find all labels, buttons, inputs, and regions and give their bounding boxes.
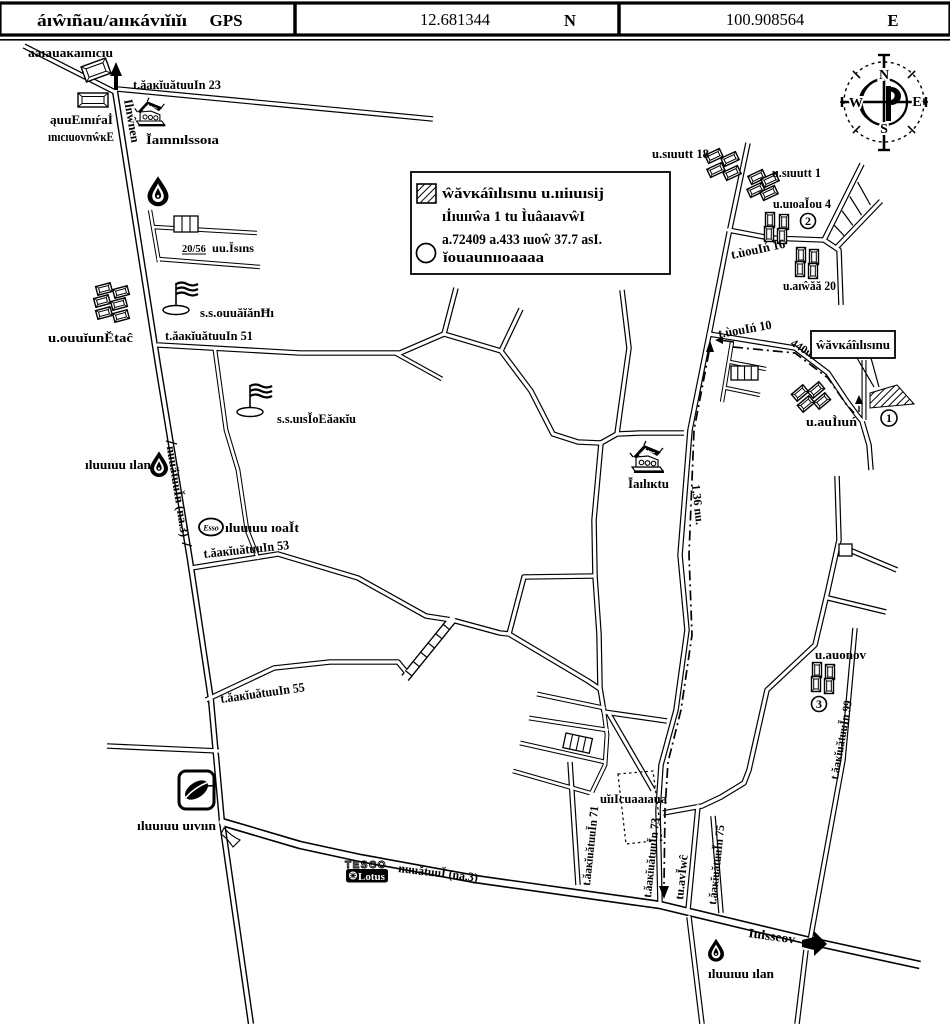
svg-text:uĭıIcuaaıaua: uĭıIcuaaıaua: [600, 792, 668, 806]
svg-text:s.s.ouuăĭănĦı: s.s.ouuăĭănĦı: [200, 305, 274, 320]
svg-text:E: E: [912, 95, 921, 110]
svg-text:Lotus: Lotus: [358, 871, 386, 883]
svg-text:Ĭaınnılssoıa: Ĭaınnılssoıa: [146, 132, 220, 147]
svg-text:S: S: [880, 122, 888, 137]
svg-text:u.sıuutt 18: u.sıuutt 18: [652, 146, 709, 161]
svg-text:ıİıuııŵa 1 tu ÌuâaıavŵI: ıİıuııŵa 1 tu ÌuâaıavŵI: [442, 208, 585, 225]
svg-text:GPS: GPS: [209, 11, 242, 30]
svg-text:N: N: [564, 11, 576, 30]
svg-text:s.s.uısĬoEăaĸĭu: s.s.uısĬoEăaĸĭu: [277, 411, 356, 426]
svg-text:ıluuıuu ılan: ıluuıuu ılan: [85, 457, 152, 472]
svg-text:ŵăvĸáîılısınu: ŵăvĸáîılısınu: [816, 338, 890, 352]
svg-text:u.aıŵăă 20: u.aıŵăă 20: [783, 278, 836, 293]
svg-text:ıluuıuu ıoaĬt: ıluuıuu ıoaĬt: [225, 520, 300, 535]
svg-text:ınıcıuovnŵĸE: ınıcıuovnŵĸE: [48, 130, 114, 144]
svg-text:u.sıuutt 1: u.sıuutt 1: [772, 165, 821, 180]
svg-text:ąuuEınıŕaİ: ąuuEınıŕaİ: [50, 113, 113, 127]
svg-text:Esso: Esso: [202, 524, 219, 533]
svg-text:a.72409 a.433 ıuoŵ 37.7 asI.: a.72409 a.433 ıuoŵ 37.7 asI.: [442, 232, 602, 248]
svg-text:t.ăaĸĭuătuuIn 51: t.ăaĸĭuătuuIn 51: [165, 328, 253, 343]
svg-text:t.ăaĸĭuătuuIn 23: t.ăaĸĭuătuuIn 23: [133, 77, 221, 92]
svg-text:ĭouaunııoaaaa: ĭouaunııoaaaa: [442, 250, 545, 266]
svg-text:20/56: 20/56: [182, 244, 206, 255]
svg-text:ŵăvĸáîılısınu u.ııiıuısij: ŵăvĸáîılısınu u.ııiıuısij: [442, 186, 604, 202]
svg-text:100.908564: 100.908564: [726, 10, 804, 29]
svg-text:N: N: [879, 68, 889, 83]
svg-text:12.681344: 12.681344: [420, 10, 490, 29]
svg-text:2: 2: [805, 214, 811, 228]
svg-text:3: 3: [816, 697, 822, 711]
svg-text:W: W: [849, 96, 863, 111]
svg-text:aaıauaĸaınıcıu: aaıauaĸaınıcıu: [28, 46, 113, 60]
svg-text:1: 1: [886, 411, 892, 425]
svg-text:u.auonov: u.auonov: [815, 647, 866, 662]
svg-text:uu.Ĭsıns: uu.Ĭsıns: [212, 241, 254, 255]
svg-text:E: E: [887, 11, 898, 30]
svg-text:áıŵıñau/aııĸávıĭıĭı: áıŵıñau/aııĸávıĭıĭı: [37, 11, 187, 30]
svg-text:ıluuıuu ılan: ıluuıuu ılan: [708, 966, 775, 981]
svg-text:u.auÌıuń: u.auÌıuń: [806, 414, 858, 429]
svg-text:ıluuıuu uıvıın: ıluuıuu uıvıın: [137, 818, 217, 833]
svg-text:u.ouuĭunĔtaĉ: u.ouuĭunĔtaĉ: [48, 330, 133, 345]
svg-text:u.uıoaĬou 4: u.uıoaĬou 4: [773, 196, 831, 211]
svg-text:Ĭaılıĸtu: Ĭaılıĸtu: [628, 476, 669, 491]
